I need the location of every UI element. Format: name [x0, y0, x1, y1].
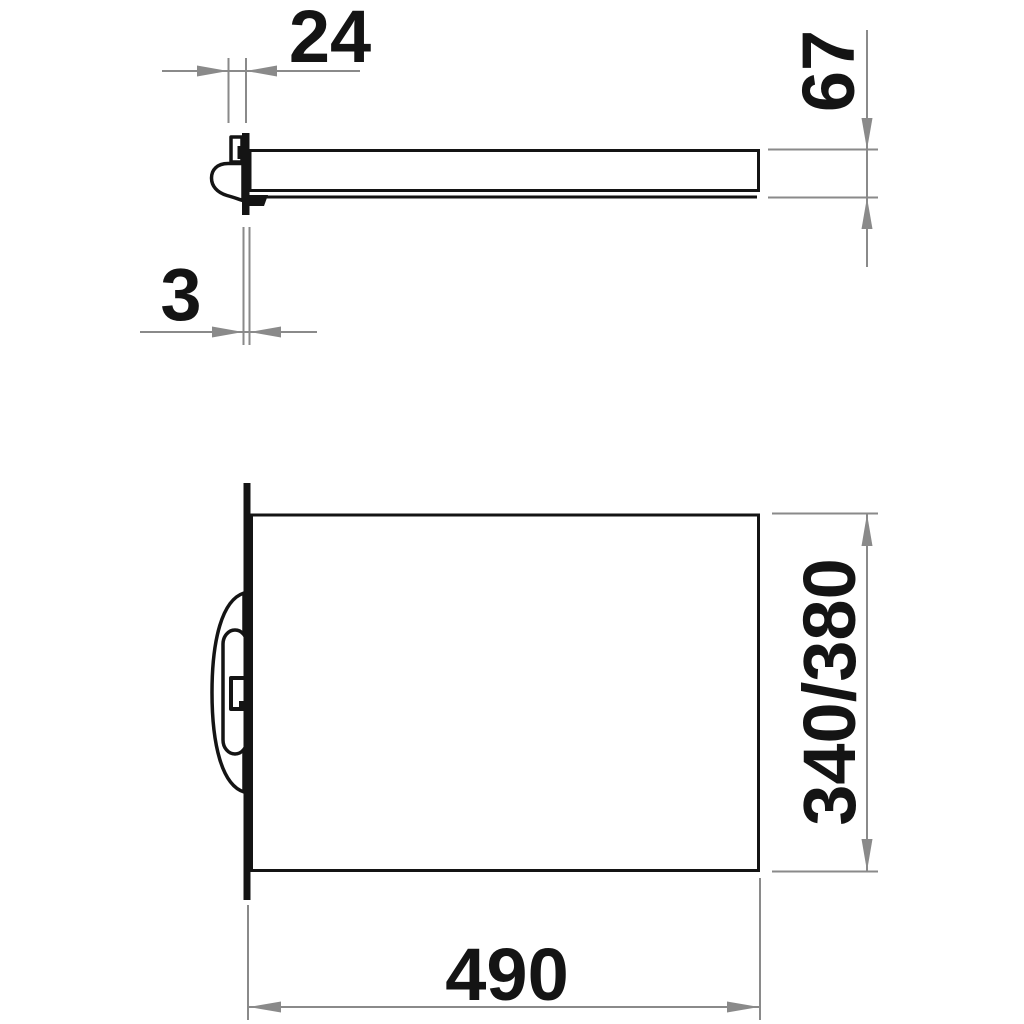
dimension-bracket-depth: 24	[162, 0, 371, 123]
arrowhead	[246, 66, 277, 77]
shelf-outline-front	[252, 515, 759, 871]
wall-plate-front	[244, 483, 251, 900]
technical-drawing: 24 3 67	[0, 0, 1024, 1024]
shelf-bar-profile	[250, 151, 759, 191]
arrowhead	[249, 1002, 281, 1013]
arrowhead	[212, 327, 243, 338]
mount-clip-profile	[212, 164, 244, 201]
side-view	[212, 133, 759, 215]
arrowhead	[862, 118, 873, 150]
dim-label-bracket-depth: 24	[289, 0, 371, 78]
dim-label-profile-height: 67	[787, 30, 870, 112]
dimension-shelf-depth: 340/380	[772, 514, 878, 872]
technical-drawing-page: 24 3 67	[0, 0, 1024, 1024]
arrowhead	[862, 198, 873, 230]
arrowhead	[197, 66, 228, 77]
wall-plate-profile	[242, 133, 250, 215]
dim-label-plate-thickness: 3	[160, 253, 201, 336]
front-view	[212, 483, 759, 900]
arrowhead	[862, 514, 873, 546]
dimension-profile-height: 67	[768, 30, 878, 267]
arrowhead	[250, 327, 281, 338]
arrowhead	[862, 839, 873, 871]
dim-label-shelf-width: 490	[445, 933, 568, 1016]
support-arm	[249, 195, 268, 206]
dim-label-shelf-depth: 340/380	[788, 558, 871, 826]
dimension-plate-thickness: 3	[140, 227, 317, 345]
dimension-shelf-width: 490	[248, 878, 760, 1020]
arrowhead	[727, 1002, 759, 1013]
